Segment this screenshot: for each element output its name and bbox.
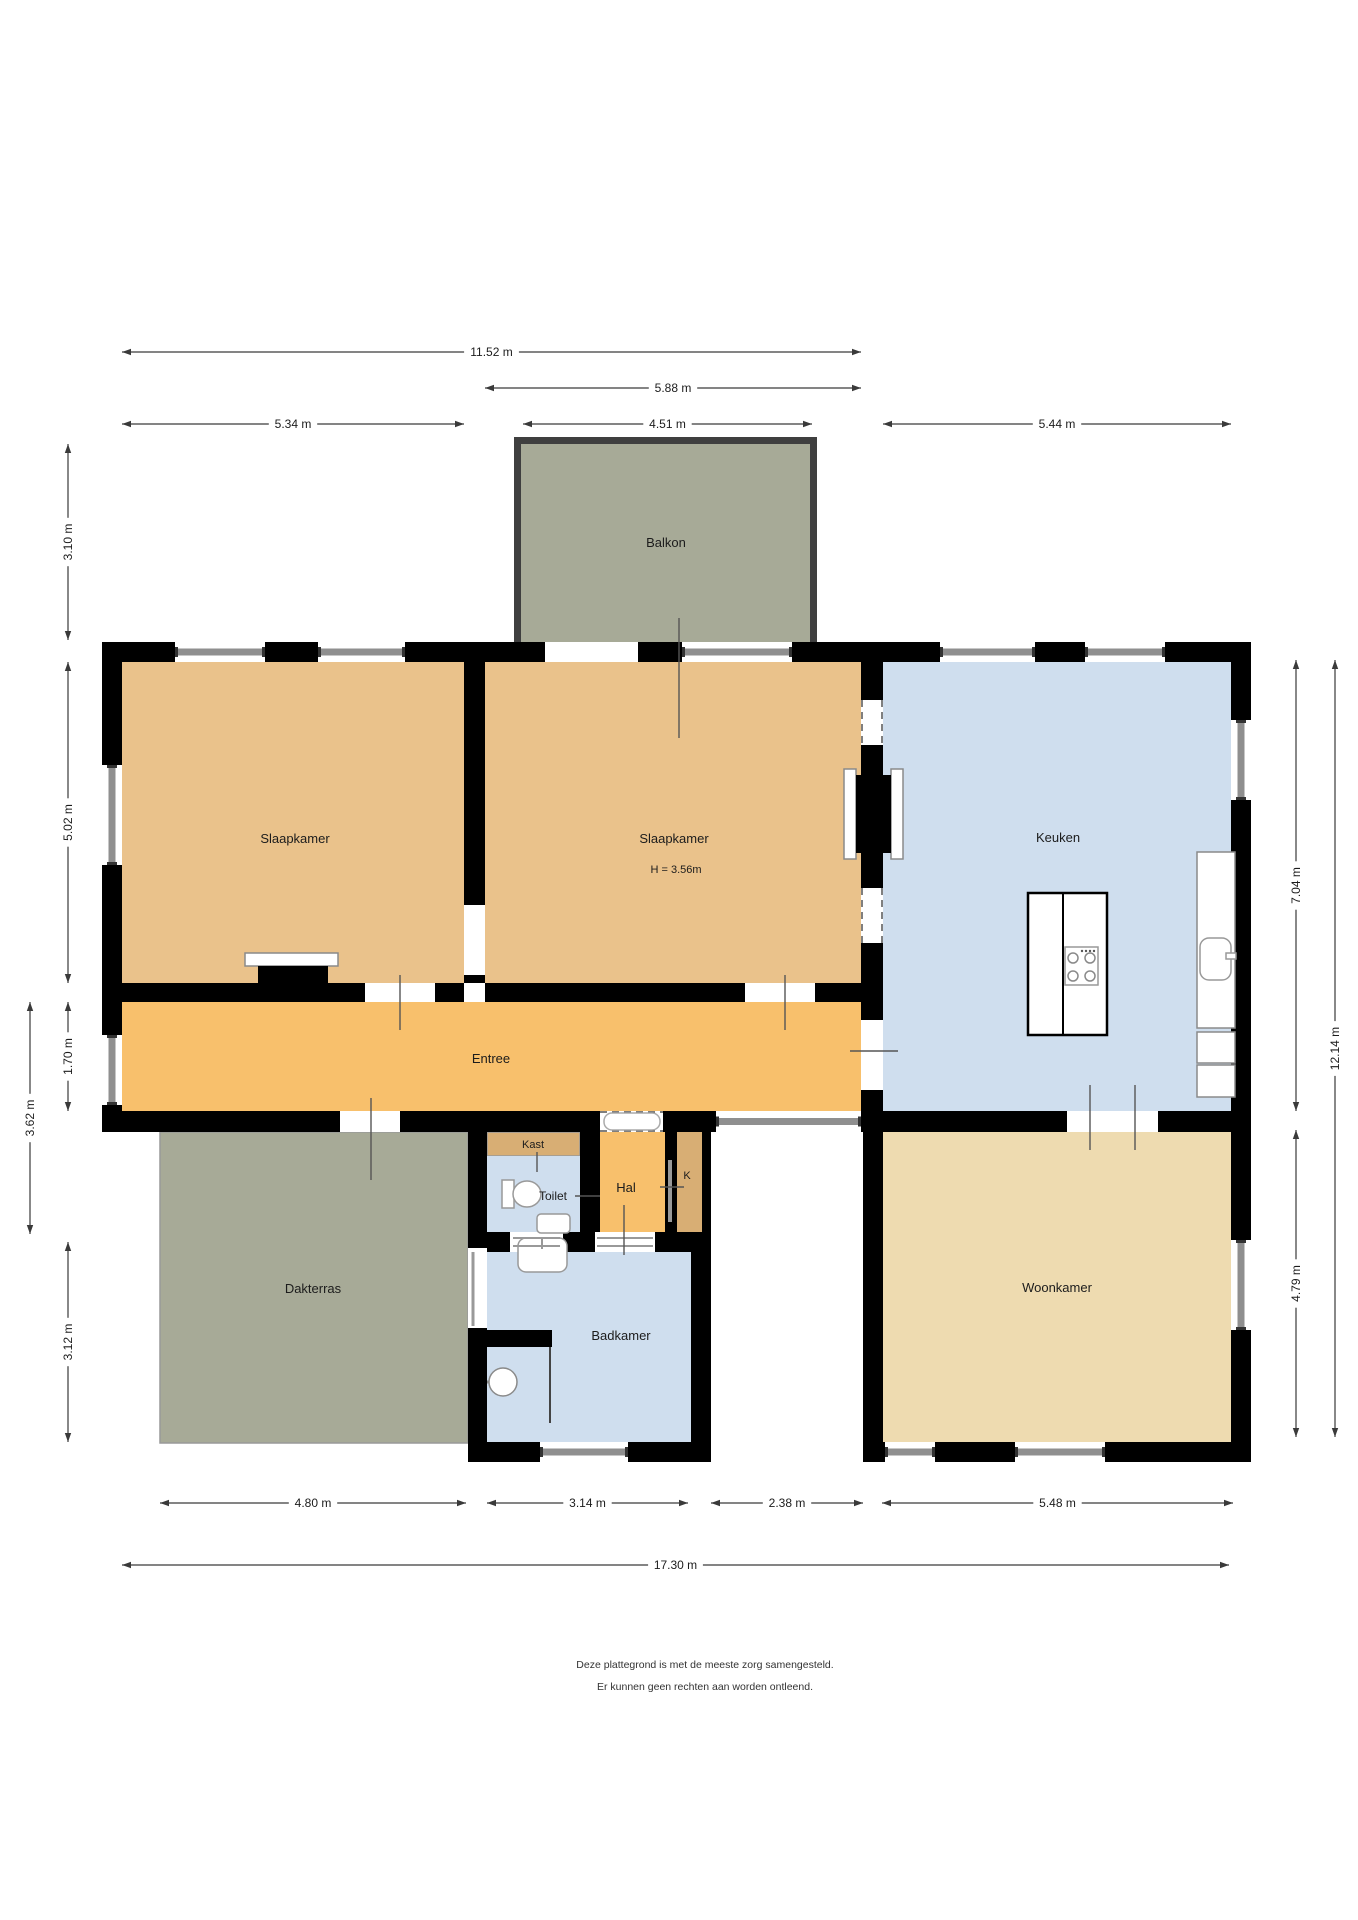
room-keuken [883,662,1231,1111]
dim-arrow [27,1002,33,1011]
stove-knob-icon [1081,950,1083,952]
room-label-kast-k: K [683,1170,691,1182]
room-label-dakterras: Dakterras [285,1281,342,1296]
wall [580,1132,600,1232]
dim-arrow [457,1500,466,1506]
dim-arrow [1293,1428,1299,1437]
dim-arrow [1293,1130,1299,1139]
dim-arrow [65,1102,71,1111]
dim-arrow [1222,421,1231,427]
dimension-label: 4.79 m [1289,1265,1303,1302]
door-dakterras [340,1111,400,1132]
dimension-label: 1.70 m [61,1038,75,1075]
window-jamb [107,862,117,865]
door-voordeur [595,1232,655,1252]
room-label-woonkamer: Woonkamer [1022,1280,1093,1295]
dimension-label: 3.12 m [61,1324,75,1361]
room-label-slaapkamer-midden: Slaapkamer [639,831,709,846]
opening-wand-onder [861,888,883,943]
room-slaapkamer-midden [485,662,861,983]
dim-arrow [711,1500,720,1506]
dim-arrow [1220,1562,1229,1568]
balcony-edge [810,437,817,642]
room-kast-k [677,1132,702,1232]
room-label-slaapkamer-links: Slaapkamer [260,831,330,846]
window-glass [109,1035,116,1105]
window-jamb [858,1117,861,1127]
dim-arrow [122,349,131,355]
room-slaapkamer-links [122,662,464,983]
door-entree-keuken [861,1020,883,1090]
window-glass [940,649,1035,656]
footer-disclaimer-line2: Er kunnen geen rechten aan worden ontlee… [26,1682,1358,1693]
stove-knob-icon [1085,950,1087,952]
room-label-badkamer: Badkamer [591,1328,651,1343]
balcony-edge [514,437,521,642]
door-tussen-slaapkamers [464,905,485,975]
counter-box-icon [1197,1065,1235,1097]
dimension-label: 5.44 m [1039,417,1076,431]
dimension-label: 5.88 m [655,381,692,395]
dim-arrow [122,1562,131,1568]
dim-arrow [485,385,494,391]
window-glass [175,649,265,656]
room-sublabel-slaapkamer-midden: H = 3.56m [650,864,701,876]
stove-knob-icon [1093,950,1095,952]
window-glass [540,1449,628,1456]
dim-arrow [27,1225,33,1234]
window-glass [682,649,792,656]
shaft-icon [856,775,891,853]
dim-arrow [1224,1500,1233,1506]
window-glass [885,1449,935,1456]
window-jamb [318,647,321,657]
dim-arrow [882,1500,891,1506]
terrace-door-opening-icon [468,1248,487,1328]
dim-arrow [65,1002,71,1011]
dim-arrow [1293,660,1299,669]
toilet-bowl-icon [513,1181,541,1207]
window-jamb [789,647,792,657]
door-slaapkamer-midden [745,983,815,1002]
kitchen-tap-icon [1226,953,1236,959]
window-jamb [175,647,178,657]
wall [485,983,883,1002]
dimension-label: 3.14 m [569,1496,606,1510]
counter-box-icon [1197,1032,1235,1063]
wall [863,1132,883,1442]
window-jamb [1102,1447,1105,1457]
dim-arrow [852,349,861,355]
window-jamb [262,647,265,657]
dimension-label: 11.52 m [470,345,512,359]
window-jamb [716,1117,719,1127]
floorplan-page: 11.52 m5.88 m5.34 m4.51 m5.44 m4.80 m3.1… [0,0,1358,1920]
window-glass [1015,1449,1105,1456]
dim-arrow [65,1242,71,1251]
window-glass [1238,720,1245,800]
window-jamb [625,1447,628,1457]
room-label-hal: Hal [616,1180,636,1195]
dimension-label: 4.80 m [295,1496,332,1510]
door-balkon [545,642,638,662]
opening-wand-boven [861,700,883,745]
wall [468,1232,691,1252]
footer-disclaimer-line1: Deze plattegrond is met de meeste zorg s… [26,1660,1358,1671]
window-jamb [1236,1240,1246,1243]
window-jamb [932,1447,935,1457]
dimension-label: 7.04 m [1289,867,1303,904]
dim-arrow [1293,1102,1299,1111]
dimension-label: 3.10 m [61,524,75,561]
room-label-toilet: Toilet [539,1189,568,1203]
dim-arrow [65,1433,71,1442]
dimension-label: 5.48 m [1039,1496,1076,1510]
window-jamb [682,647,685,657]
dimension-label: 4.51 m [649,417,686,431]
dim-arrow [65,631,71,640]
dim-arrow [883,421,892,427]
dim-arrow [65,974,71,983]
window-jamb [940,647,943,657]
room-label-entree: Entree [472,1051,510,1066]
shaft-liner-icon [891,769,903,859]
window-jamb [1236,1327,1246,1330]
wall [102,642,1251,662]
window-glass [109,765,116,865]
window-jamb [107,1102,117,1105]
room-label-keuken: Keuken [1036,830,1080,845]
toilet-tank-icon [502,1180,514,1208]
dimension-label: 3.62 m [23,1100,37,1137]
stove-knob-icon [1089,950,1091,952]
dimension-label: 2.38 m [769,1496,806,1510]
room-label-kast: Kast [522,1139,544,1151]
wardrobe-base-icon [258,966,328,1002]
dim-arrow [1332,660,1338,669]
window-jamb [402,647,405,657]
window-glass [1238,1240,1245,1330]
window-glass [318,649,405,656]
window-jamb [1032,647,1035,657]
window-jamb [107,765,117,768]
toilet-sink-icon [537,1214,570,1233]
window-jamb [1162,647,1165,657]
window-jamb [540,1447,543,1457]
balcony-edge [514,437,817,444]
dim-arrow [122,421,131,427]
window-jamb [1236,720,1246,723]
room-label-balkon: Balkon [646,535,686,550]
dim-arrow [679,1500,688,1506]
dim-arrow [854,1500,863,1506]
dim-arrow [65,662,71,671]
dimension-label: 5.02 m [61,804,75,841]
shower-head-icon [489,1368,517,1396]
dim-arrow [803,421,812,427]
wall [691,1232,711,1442]
dim-arrow [160,1500,169,1506]
dim-arrow [455,421,464,427]
dim-arrow [487,1500,496,1506]
window-glass [1085,649,1165,656]
dimension-label: 17.30 m [654,1558,697,1572]
shower-wall-icon [487,1330,552,1347]
window-jamb [1085,647,1088,657]
threshold-pill-icon [604,1113,660,1130]
dim-arrow [65,444,71,453]
wall [702,1132,711,1232]
dimension-label: 5.34 m [275,417,312,431]
wardrobe-top-icon [245,953,338,966]
window-glass [716,1118,861,1125]
window-jamb [107,1035,117,1038]
dim-arrow [852,385,861,391]
door-keuken-woonkamer [1067,1111,1158,1132]
shaft-liner-icon [844,769,856,859]
window-jamb [1236,797,1246,800]
dim-arrow [1332,1428,1338,1437]
window-jamb [885,1447,888,1457]
floorplan-drawing: 11.52 m5.88 m5.34 m4.51 m5.44 m4.80 m3.1… [0,0,1358,1920]
dimension-label: 12.14 m [1328,1027,1342,1070]
dim-arrow [523,421,532,427]
window-jamb [1015,1447,1018,1457]
